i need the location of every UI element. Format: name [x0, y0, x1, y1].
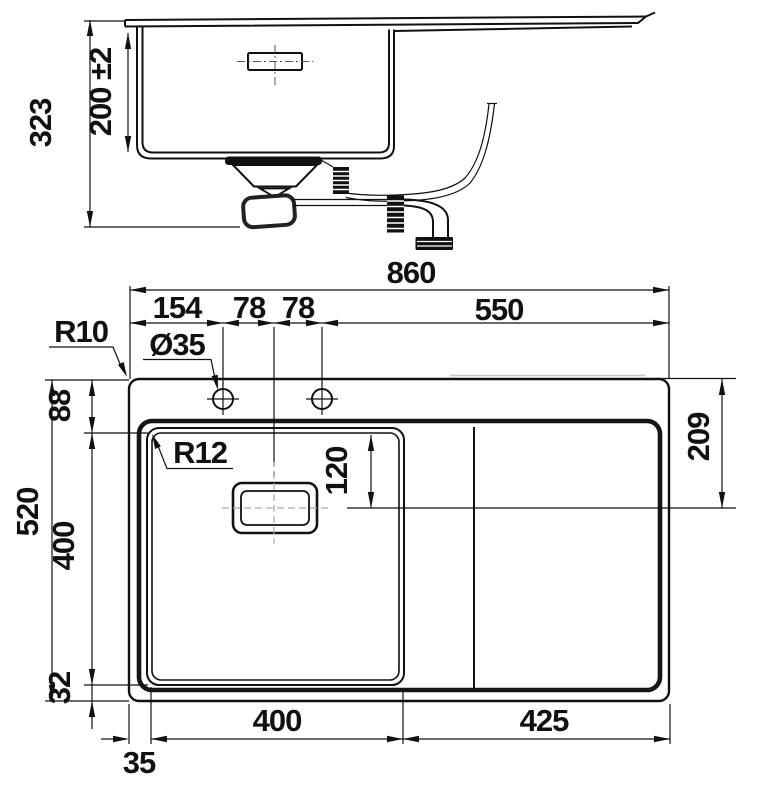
- dim-overall-width: 860: [130, 255, 669, 293]
- tap-hole-section: [237, 45, 313, 88]
- dim-text-78-right: 78: [282, 290, 315, 325]
- strainer-flange: [225, 157, 322, 166]
- waste-assembly: [225, 157, 453, 251]
- dim-text-323: 323: [23, 98, 58, 147]
- tap-hole-left: [207, 383, 239, 415]
- drainboard-underside: [394, 27, 632, 32]
- dim-text-550: 550: [475, 292, 524, 327]
- dim-bowl-depth: 200 ±2: [83, 33, 131, 152]
- sink-technical-drawing: 323 200 ±2: [0, 0, 761, 800]
- label-bowl-corner-radius: R12: [152, 434, 233, 470]
- drain-hole: [222, 472, 328, 544]
- tap-hole-right: [306, 383, 338, 415]
- dim-drain-from-top: 209: [681, 379, 725, 508]
- side-view: 323 200 ±2: [23, 13, 655, 251]
- dim-drain-from-bowl-top: 120: [319, 435, 374, 508]
- strainer-cup: [233, 165, 317, 187]
- dim-text-200: 200 ±2: [83, 48, 118, 137]
- countertop-profile: [125, 13, 655, 27]
- dim-text-860: 860: [387, 255, 436, 290]
- dim-bowl-width: 400: [151, 703, 403, 742]
- label-text-r10: R10: [54, 314, 108, 349]
- label-text-d35: Ø35: [149, 327, 205, 362]
- dim-text-209: 209: [681, 412, 716, 461]
- dim-text-400-bottom: 400: [253, 703, 302, 738]
- dim-text-35: 35: [123, 745, 156, 780]
- dim-text-32: 32: [42, 672, 77, 704]
- dim-text-120: 120: [319, 447, 354, 496]
- pipe-coupling: [387, 196, 404, 233]
- dim-drainboard-width: 425: [403, 703, 670, 742]
- label-tap-hole-diameter: Ø35: [143, 327, 218, 390]
- label-text-r12: R12: [173, 435, 227, 470]
- dim-text-78-left: 78: [233, 290, 266, 325]
- bowl-section: [137, 27, 632, 159]
- bowl-outline-inner: [152, 433, 399, 680]
- trap-body: [243, 195, 296, 228]
- technical-drawing-page: 323 200 ±2: [0, 0, 761, 800]
- overflow-nipple: [333, 167, 349, 194]
- dim-text-425: 425: [520, 703, 569, 738]
- dim-text-400-vertical: 400: [46, 522, 81, 571]
- label-corner-radius-r10: R10: [49, 314, 127, 377]
- outlet-elbow: [404, 200, 453, 251]
- plan-view: 860 154 78 78 550 R10 Ø35: [10, 255, 736, 780]
- dim-left-column: 88 400 32: [42, 380, 95, 729]
- dim-overall-height: 323: [23, 20, 240, 227]
- dim-text-520: 520: [10, 488, 45, 537]
- dim-text-154: 154: [153, 290, 203, 325]
- dim-text-88: 88: [42, 389, 77, 422]
- dim-row-tap-holes: 154 78 78 550: [130, 290, 669, 327]
